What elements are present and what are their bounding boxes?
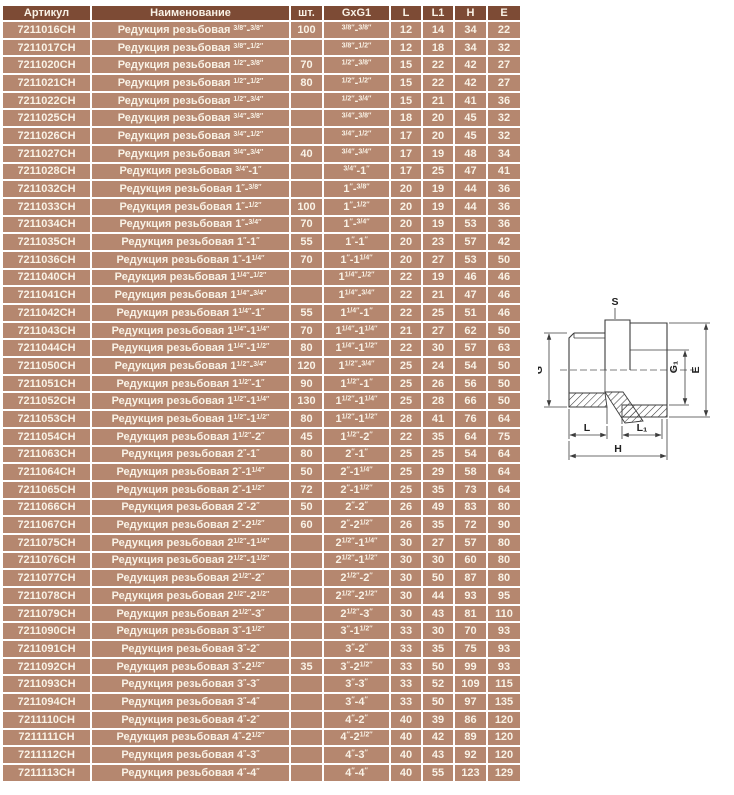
cell-h: 92 [455, 747, 486, 763]
catalog-table-body: 7211016CHРедукция резьбовая 3/8″-3/8″100… [3, 22, 520, 781]
cell-l: 33 [391, 623, 421, 639]
cell-qty: 60 [291, 517, 322, 533]
cell-name: Редукция резьбовая 3/8″-3/8″ [92, 22, 289, 38]
cell-article: 7211051CH [3, 376, 90, 392]
cell-l: 40 [391, 765, 421, 781]
cell-qty: 80 [291, 340, 322, 356]
cell-name: Редукция резьбовая 2″-2″ [92, 500, 289, 516]
cell-gxg1: 1/2″-3/4″ [324, 93, 389, 109]
cell-name: Редукция резьбовая 11/4″-11/2″ [92, 340, 289, 356]
cell-gxg1: 1″-3/8″ [324, 181, 389, 197]
cell-gxg1: 2″-11/4″ [324, 464, 389, 480]
cell-l: 15 [391, 75, 421, 91]
cell-qty [291, 570, 322, 586]
cell-e: 80 [488, 500, 520, 516]
cell-h: 34 [455, 40, 486, 56]
cell-gxg1: 11/2″-11/4″ [324, 393, 389, 409]
cell-e: 115 [488, 676, 520, 692]
cell-name: Редукция резьбовая 3/4″-1″ [92, 164, 289, 180]
cell-e: 46 [488, 305, 520, 321]
cell-article: 7211079CH [3, 606, 90, 622]
cell-e: 80 [488, 570, 520, 586]
cell-l1: 50 [423, 570, 453, 586]
table-row: 7211036CHРедукция резьбовая 1″-11/4″701″… [3, 252, 520, 268]
cell-qty [291, 694, 322, 710]
cell-e: 93 [488, 641, 520, 657]
cell-name: Редукция резьбовая 1″-3/8″ [92, 181, 289, 197]
cell-l: 25 [391, 393, 421, 409]
cell-l1: 22 [423, 75, 453, 91]
cell-l: 20 [391, 252, 421, 268]
cell-h: 64 [455, 429, 486, 445]
cell-e: 120 [488, 747, 520, 763]
cell-h: 76 [455, 411, 486, 427]
cell-e: 46 [488, 270, 520, 286]
cell-gxg1: 3″-2″ [324, 641, 389, 657]
cell-qty: 70 [291, 217, 322, 233]
cell-l1: 50 [423, 659, 453, 675]
cell-l: 26 [391, 500, 421, 516]
cell-e: 64 [488, 411, 520, 427]
cell-e: 64 [488, 464, 520, 480]
cell-name: Редукция резьбовая 11/4″-11/4″ [92, 323, 289, 339]
cell-qty [291, 730, 322, 746]
cell-article: 7211032CH [3, 181, 90, 197]
cell-l1: 19 [423, 199, 453, 215]
cell-h: 93 [455, 588, 486, 604]
cell-gxg1: 2″-1″ [324, 447, 389, 463]
cell-h: 75 [455, 641, 486, 657]
cell-l1: 23 [423, 234, 453, 250]
cell-h: 53 [455, 252, 486, 268]
cell-article: 7211053CH [3, 411, 90, 427]
cell-h: 62 [455, 323, 486, 339]
cell-h: 46 [455, 270, 486, 286]
table-row: 7211026CHРедукция резьбовая 3/4″-1/2″3/4… [3, 128, 520, 144]
cell-gxg1: 21/2″-11/2″ [324, 553, 389, 569]
dim-label-l1: L₁ [637, 422, 648, 434]
cell-name: Редукция резьбовая 3″-2″ [92, 641, 289, 657]
cell-h: 73 [455, 482, 486, 498]
cell-l: 25 [391, 376, 421, 392]
cell-h: 123 [455, 765, 486, 781]
cell-name: Редукция резьбовая 21/2″-11/4″ [92, 535, 289, 551]
cell-gxg1: 4″-2″ [324, 712, 389, 728]
cell-l1: 20 [423, 128, 453, 144]
cell-l1: 43 [423, 747, 453, 763]
cell-name: Редукция резьбовая 1″-1″ [92, 234, 289, 250]
cell-qty [291, 93, 322, 109]
cell-e: 34 [488, 146, 520, 162]
table-row: 7211110CHРедукция резьбовая 4″-2″4″-2″40… [3, 712, 520, 728]
cell-qty [291, 765, 322, 781]
cell-e: 32 [488, 128, 520, 144]
cell-l: 25 [391, 447, 421, 463]
table-row: 7211050CHРедукция резьбовая 11/2″-3/4″12… [3, 358, 520, 374]
cell-article: 7211064CH [3, 464, 90, 480]
cell-qty [291, 287, 322, 303]
cell-article: 7211075CH [3, 535, 90, 551]
cell-l: 33 [391, 676, 421, 692]
cell-qty: 50 [291, 500, 322, 516]
cell-gxg1: 2″-21/2″ [324, 517, 389, 533]
cell-gxg1: 4″-4″ [324, 765, 389, 781]
cell-gxg1: 4″-3″ [324, 747, 389, 763]
cell-e: 36 [488, 217, 520, 233]
cell-h: 57 [455, 234, 486, 250]
cell-e: 93 [488, 623, 520, 639]
cell-h: 57 [455, 340, 486, 356]
cell-l: 12 [391, 22, 421, 38]
cell-article: 7211020CH [3, 57, 90, 73]
cell-gxg1: 1/2″-3/8″ [324, 57, 389, 73]
cell-gxg1: 11/4″-3/4″ [324, 287, 389, 303]
cell-qty: 80 [291, 447, 322, 463]
cell-l: 30 [391, 588, 421, 604]
cell-e: 50 [488, 393, 520, 409]
cell-h: 44 [455, 199, 486, 215]
cell-qty [291, 588, 322, 604]
cell-e: 50 [488, 252, 520, 268]
table-row: 7211076CHРедукция резьбовая 21/2″-11/2″2… [3, 553, 520, 569]
cell-e: 27 [488, 75, 520, 91]
cell-name: Редукция резьбовая 3″-4″ [92, 694, 289, 710]
cell-name: Редукция резьбовая 1″-3/4″ [92, 217, 289, 233]
cell-l: 22 [391, 340, 421, 356]
cell-e: 42 [488, 234, 520, 250]
cell-gxg1: 3″-3″ [324, 676, 389, 692]
cell-l1: 25 [423, 305, 453, 321]
cell-l: 40 [391, 747, 421, 763]
cell-article: 7211027CH [3, 146, 90, 162]
cell-name: Редукция резьбовая 11/2″-11/2″ [92, 411, 289, 427]
cell-e: 93 [488, 659, 520, 675]
cell-l1: 27 [423, 252, 453, 268]
cell-h: 83 [455, 500, 486, 516]
cell-l: 30 [391, 535, 421, 551]
table-row: 7211079CHРедукция резьбовая 21/2″-3″21/2… [3, 606, 520, 622]
cell-gxg1: 3″-4″ [324, 694, 389, 710]
cell-qty: 100 [291, 22, 322, 38]
cell-qty [291, 747, 322, 763]
cell-l1: 19 [423, 181, 453, 197]
cell-l: 30 [391, 553, 421, 569]
cell-l: 25 [391, 464, 421, 480]
cell-gxg1: 3/4″-1″ [324, 164, 389, 180]
cell-l: 33 [391, 641, 421, 657]
cell-e: 120 [488, 712, 520, 728]
cell-e: 41 [488, 164, 520, 180]
cell-e: 75 [488, 429, 520, 445]
cell-e: 50 [488, 323, 520, 339]
cell-name: Редукция резьбовая 21/2″-11/2″ [92, 553, 289, 569]
cell-h: 86 [455, 712, 486, 728]
table-row: 7211051CHРедукция резьбовая 11/2″-1″9011… [3, 376, 520, 392]
table-row: 7211092CHРедукция резьбовая 3″-21/2″353″… [3, 659, 520, 675]
cell-l1: 24 [423, 358, 453, 374]
table-row: 7211063CHРедукция резьбовая 2″-1″802″-1″… [3, 447, 520, 463]
cell-l: 22 [391, 429, 421, 445]
cell-h: 42 [455, 75, 486, 91]
cell-l1: 30 [423, 340, 453, 356]
cell-l1: 35 [423, 517, 453, 533]
cell-article: 7211021CH [3, 75, 90, 91]
cell-l1: 28 [423, 393, 453, 409]
cell-qty: 70 [291, 57, 322, 73]
table-row: 7211066CHРедукция резьбовая 2″-2″502″-2″… [3, 500, 520, 516]
cell-h: 87 [455, 570, 486, 586]
cell-h: 41 [455, 93, 486, 109]
cell-l1: 43 [423, 606, 453, 622]
cell-article: 7211033CH [3, 199, 90, 215]
table-row: 7211054CHРедукция резьбовая 11/2″-2″4511… [3, 429, 520, 445]
cell-article: 7211110CH [3, 712, 90, 728]
cell-h: 45 [455, 128, 486, 144]
cell-qty: 100 [291, 199, 322, 215]
cell-h: 44 [455, 181, 486, 197]
cell-qty: 80 [291, 411, 322, 427]
cell-name: Редукция резьбовая 1″-11/4″ [92, 252, 289, 268]
cell-gxg1: 21/2″-3″ [324, 606, 389, 622]
cell-qty: 130 [291, 393, 322, 409]
cell-article: 7211022CH [3, 93, 90, 109]
table-row: 7211035CHРедукция резьбовая 1″-1″551″-1″… [3, 234, 520, 250]
cell-qty: 55 [291, 305, 322, 321]
cell-e: 129 [488, 765, 520, 781]
cell-article: 7211092CH [3, 659, 90, 675]
dim-label-e: E [690, 366, 702, 373]
cell-gxg1: 3/4″-3/8″ [324, 110, 389, 126]
table-row: 7211067CHРедукция резьбовая 2″-21/2″602″… [3, 517, 520, 533]
cell-l: 17 [391, 164, 421, 180]
cell-article: 7211077CH [3, 570, 90, 586]
cell-e: 36 [488, 181, 520, 197]
cell-l1: 22 [423, 57, 453, 73]
cell-article: 7211066CH [3, 500, 90, 516]
cell-l: 40 [391, 712, 421, 728]
cell-article: 7211041CH [3, 287, 90, 303]
cell-l1: 26 [423, 376, 453, 392]
cell-qty [291, 641, 322, 657]
cell-qty: 40 [291, 146, 322, 162]
cell-qty [291, 623, 322, 639]
cell-article: 7211028CH [3, 164, 90, 180]
cell-h: 58 [455, 464, 486, 480]
cell-l: 15 [391, 57, 421, 73]
cell-article: 7211113CH [3, 765, 90, 781]
column-header-e: E [488, 6, 520, 20]
cell-l: 22 [391, 287, 421, 303]
cell-e: 110 [488, 606, 520, 622]
table-row: 7211022CHРедукция резьбовая 1/2″-3/4″1/2… [3, 93, 520, 109]
cell-name: Редукция резьбовая 2″-11/2″ [92, 482, 289, 498]
cell-l: 20 [391, 181, 421, 197]
cell-h: 109 [455, 676, 486, 692]
cell-l: 17 [391, 128, 421, 144]
cell-h: 97 [455, 694, 486, 710]
hatch-left-thread [569, 393, 607, 407]
table-row: 7211043CHРедукция резьбовая 11/4″-11/4″7… [3, 323, 520, 339]
cell-l: 20 [391, 217, 421, 233]
cell-h: 60 [455, 553, 486, 569]
cell-gxg1: 2″-2″ [324, 500, 389, 516]
cell-name: Редукция резьбовая 1″-1/2″ [92, 199, 289, 215]
cell-l1: 44 [423, 588, 453, 604]
cell-name: Редукция резьбовая 3/8″-1/2″ [92, 40, 289, 56]
cell-name: Редукция резьбовая 2″-11/4″ [92, 464, 289, 480]
cell-gxg1: 11/2″-2″ [324, 429, 389, 445]
table-header: Артикул Наименование шт. GxG1 L L1 H E [3, 6, 520, 20]
cell-e: 120 [488, 730, 520, 746]
cell-qty [291, 712, 322, 728]
cell-l: 22 [391, 305, 421, 321]
cell-l: 25 [391, 358, 421, 374]
cell-qty: 72 [291, 482, 322, 498]
cell-gxg1: 1/2″-1/2″ [324, 75, 389, 91]
cell-e: 50 [488, 376, 520, 392]
cell-gxg1: 21/2″-21/2″ [324, 588, 389, 604]
cell-article: 7211094CH [3, 694, 90, 710]
table-row: 7211017CHРедукция резьбовая 3/8″-1/2″3/8… [3, 40, 520, 56]
cell-article: 7211042CH [3, 305, 90, 321]
table-row: 7211090CHРедукция резьбовая 3″-11/2″3″-1… [3, 623, 520, 639]
cell-l1: 39 [423, 712, 453, 728]
cell-h: 48 [455, 146, 486, 162]
cell-article: 7211112CH [3, 747, 90, 763]
cell-qty [291, 110, 322, 126]
cell-l: 25 [391, 482, 421, 498]
cell-name: Редукция резьбовая 4″-21/2″ [92, 730, 289, 746]
dim-l: L [569, 409, 607, 439]
cell-l1: 35 [423, 429, 453, 445]
cell-l: 18 [391, 110, 421, 126]
cell-gxg1: 11/2″-1″ [324, 376, 389, 392]
table-row: 7211091CHРедукция резьбовая 3″-2″3″-2″33… [3, 641, 520, 657]
cell-h: 89 [455, 730, 486, 746]
cell-l: 20 [391, 234, 421, 250]
cell-qty: 35 [291, 659, 322, 675]
cell-l1: 49 [423, 500, 453, 516]
dim-label-h: H [614, 443, 622, 455]
cell-name: Редукция резьбовая 11/2″-11/4″ [92, 393, 289, 409]
cell-name: Редукция резьбовая 4″-3″ [92, 747, 289, 763]
cell-article: 7211065CH [3, 482, 90, 498]
cell-e: 36 [488, 199, 520, 215]
table-row: 7211042CHРедукция резьбовая 11/4″-1″5511… [3, 305, 520, 321]
cell-name: Редукция резьбовая 11/2″-2″ [92, 429, 289, 445]
table-row: 7211112CHРедукция резьбовая 4″-3″4″-3″40… [3, 747, 520, 763]
cell-gxg1: 2″-11/2″ [324, 482, 389, 498]
cell-h: 54 [455, 447, 486, 463]
cell-h: 99 [455, 659, 486, 675]
cell-article: 7211040CH [3, 270, 90, 286]
cell-l1: 50 [423, 694, 453, 710]
cell-name: Редукция резьбовая 1/2″-1/2″ [92, 75, 289, 91]
cell-l1: 55 [423, 765, 453, 781]
cell-gxg1: 1″-11/4″ [324, 252, 389, 268]
cell-l: 30 [391, 570, 421, 586]
cell-l1: 14 [423, 22, 453, 38]
cell-qty: 45 [291, 429, 322, 445]
column-header-article: Артикул [3, 6, 90, 20]
cell-l1: 21 [423, 287, 453, 303]
column-header-l: L [391, 6, 421, 20]
cell-article: 7211036CH [3, 252, 90, 268]
cell-gxg1: 11/4″-1/2″ [324, 270, 389, 286]
cell-article: 7211052CH [3, 393, 90, 409]
cell-e: 36 [488, 93, 520, 109]
cell-qty [291, 40, 322, 56]
cell-gxg1: 3/4″-3/4″ [324, 146, 389, 162]
column-header-name: Наименование [92, 6, 289, 20]
cell-h: 51 [455, 305, 486, 321]
header-row: Артикул Наименование шт. GxG1 L L1 H E [3, 6, 520, 20]
cell-name: Редукция резьбовая 3″-11/2″ [92, 623, 289, 639]
cell-name: Редукция резьбовая 11/2″-1″ [92, 376, 289, 392]
cell-h: 42 [455, 57, 486, 73]
column-header-l1: L1 [423, 6, 453, 20]
cell-h: 66 [455, 393, 486, 409]
cell-name: Редукция резьбовая 3″-21/2″ [92, 659, 289, 675]
cell-name: Редукция резьбовая 11/2″-3/4″ [92, 358, 289, 374]
cell-l: 33 [391, 659, 421, 675]
cell-name: Редукция резьбовая 11/4″-1/2″ [92, 270, 289, 286]
cell-e: 63 [488, 340, 520, 356]
cell-l: 20 [391, 199, 421, 215]
cell-article: 7211025CH [3, 110, 90, 126]
table-row: 7211065CHРедукция резьбовая 2″-11/2″722″… [3, 482, 520, 498]
cell-article: 7211063CH [3, 447, 90, 463]
cell-article: 7211076CH [3, 553, 90, 569]
table-row: 7211044CHРедукция резьбовая 11/4″-11/2″8… [3, 340, 520, 356]
cell-qty [291, 676, 322, 692]
cell-e: 46 [488, 287, 520, 303]
table-row: 7211077CHРедукция резьбовая 21/2″-2″21/2… [3, 570, 520, 586]
dim-label-s: S [611, 296, 618, 308]
cell-l1: 30 [423, 623, 453, 639]
cell-l: 33 [391, 694, 421, 710]
hatch-right-thread [622, 405, 667, 417]
cell-article: 7211078CH [3, 588, 90, 604]
cell-gxg1: 3″-21/2″ [324, 659, 389, 675]
catalog-table: Артикул Наименование шт. GxG1 L L1 H E 7… [1, 4, 522, 783]
cell-e: 135 [488, 694, 520, 710]
cell-qty [291, 535, 322, 551]
cell-qty [291, 270, 322, 286]
cell-article: 7211090CH [3, 623, 90, 639]
cell-l1: 19 [423, 270, 453, 286]
cell-l: 26 [391, 517, 421, 533]
cell-qty: 80 [291, 75, 322, 91]
cell-e: 64 [488, 482, 520, 498]
cell-name: Редукция резьбовая 3/4″-3/8″ [92, 110, 289, 126]
column-header-qty: шт. [291, 6, 322, 20]
cell-qty [291, 128, 322, 144]
cell-l1: 19 [423, 146, 453, 162]
cell-h: 57 [455, 535, 486, 551]
cell-name: Редукция резьбовая 3/4″-1/2″ [92, 128, 289, 144]
cell-name: Редукция резьбовая 1/2″-3/4″ [92, 93, 289, 109]
dim-label-g1: G₁ [668, 361, 680, 374]
cell-article: 7211043CH [3, 323, 90, 339]
cell-gxg1: 11/2″-11/2″ [324, 411, 389, 427]
cell-l1: 18 [423, 40, 453, 56]
cell-article: 7211016CH [3, 22, 90, 38]
cell-l1: 19 [423, 217, 453, 233]
cell-l1: 25 [423, 164, 453, 180]
cell-gxg1: 11/4″-11/4″ [324, 323, 389, 339]
cell-e: 64 [488, 447, 520, 463]
